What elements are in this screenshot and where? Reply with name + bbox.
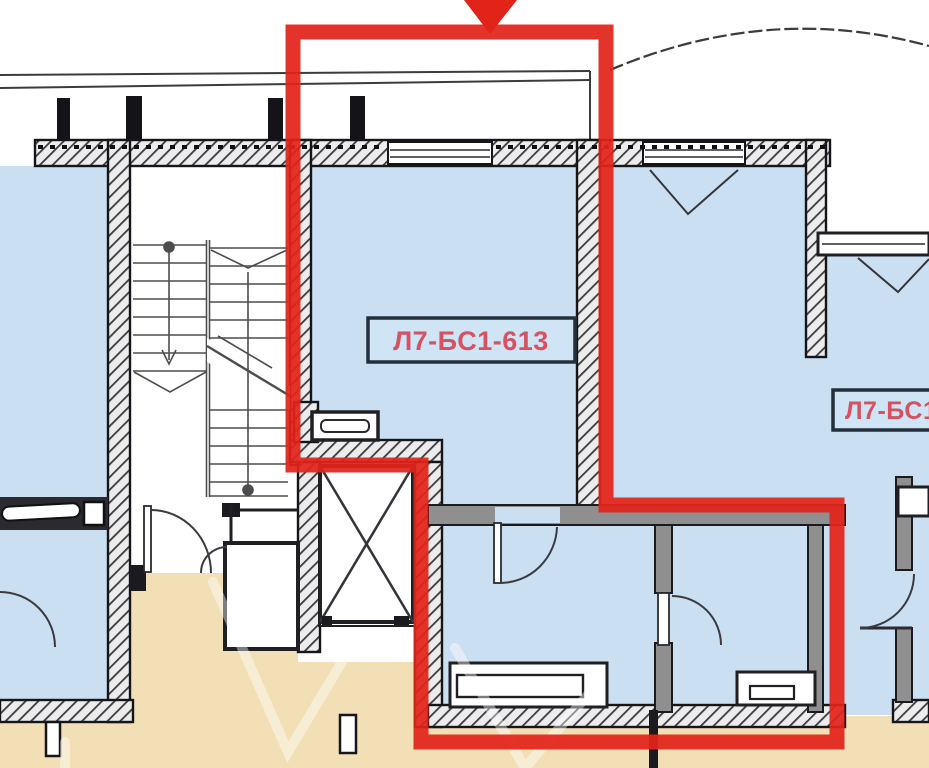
room-neighbor xyxy=(600,166,826,525)
adjacent-unit-label: Л7-БС1-6 xyxy=(845,397,929,425)
floor-plan-svg: Л7-БС1-613 Л7-БС1-6 xyxy=(0,0,929,768)
wall-left-vertical xyxy=(108,140,130,722)
floor-plan-image: Л7-БС1-613 Л7-БС1-6 xyxy=(0,0,929,768)
unit-label: Л7-БС1-613 xyxy=(393,326,549,356)
wall-elevator-left xyxy=(298,462,320,652)
wall-bottom-left xyxy=(0,700,133,722)
room-left-bottom xyxy=(0,530,108,702)
room-left-top xyxy=(0,166,108,497)
elevator-shaft xyxy=(318,466,415,626)
wall-bottom-right xyxy=(893,700,929,722)
vent-shaft xyxy=(312,412,378,440)
wall-unit-right xyxy=(577,140,600,507)
